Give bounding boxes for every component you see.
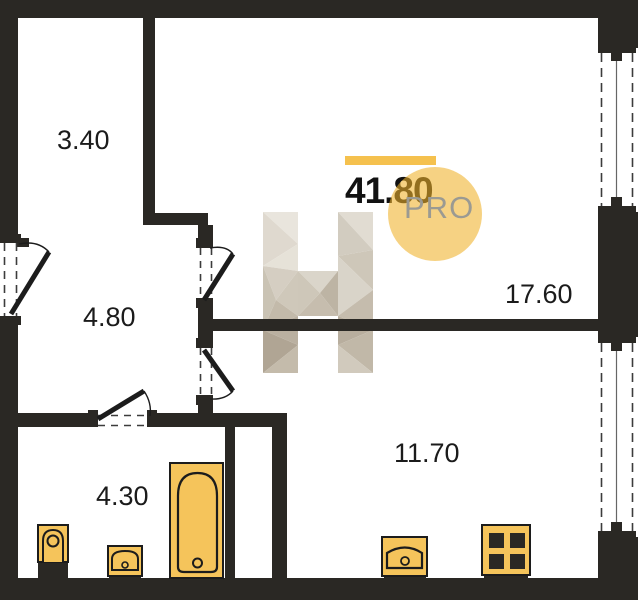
area-label-hallway: 4.80 [83,304,136,331]
area-label-living-room: 17.60 [505,281,573,308]
floor-plan: 3.40 4.80 4.30 17.60 11.70 41.80 PRO [0,0,638,600]
area-label-kitchen: 11.70 [394,440,460,467]
logo-pro-text: PRO [404,192,474,223]
labels-layer: 3.40 4.80 4.30 17.60 11.70 [0,0,638,600]
area-label-bathroom: 4.30 [96,483,149,510]
accent-bar [345,156,436,165]
area-label-wardrobe: 3.40 [57,127,110,154]
